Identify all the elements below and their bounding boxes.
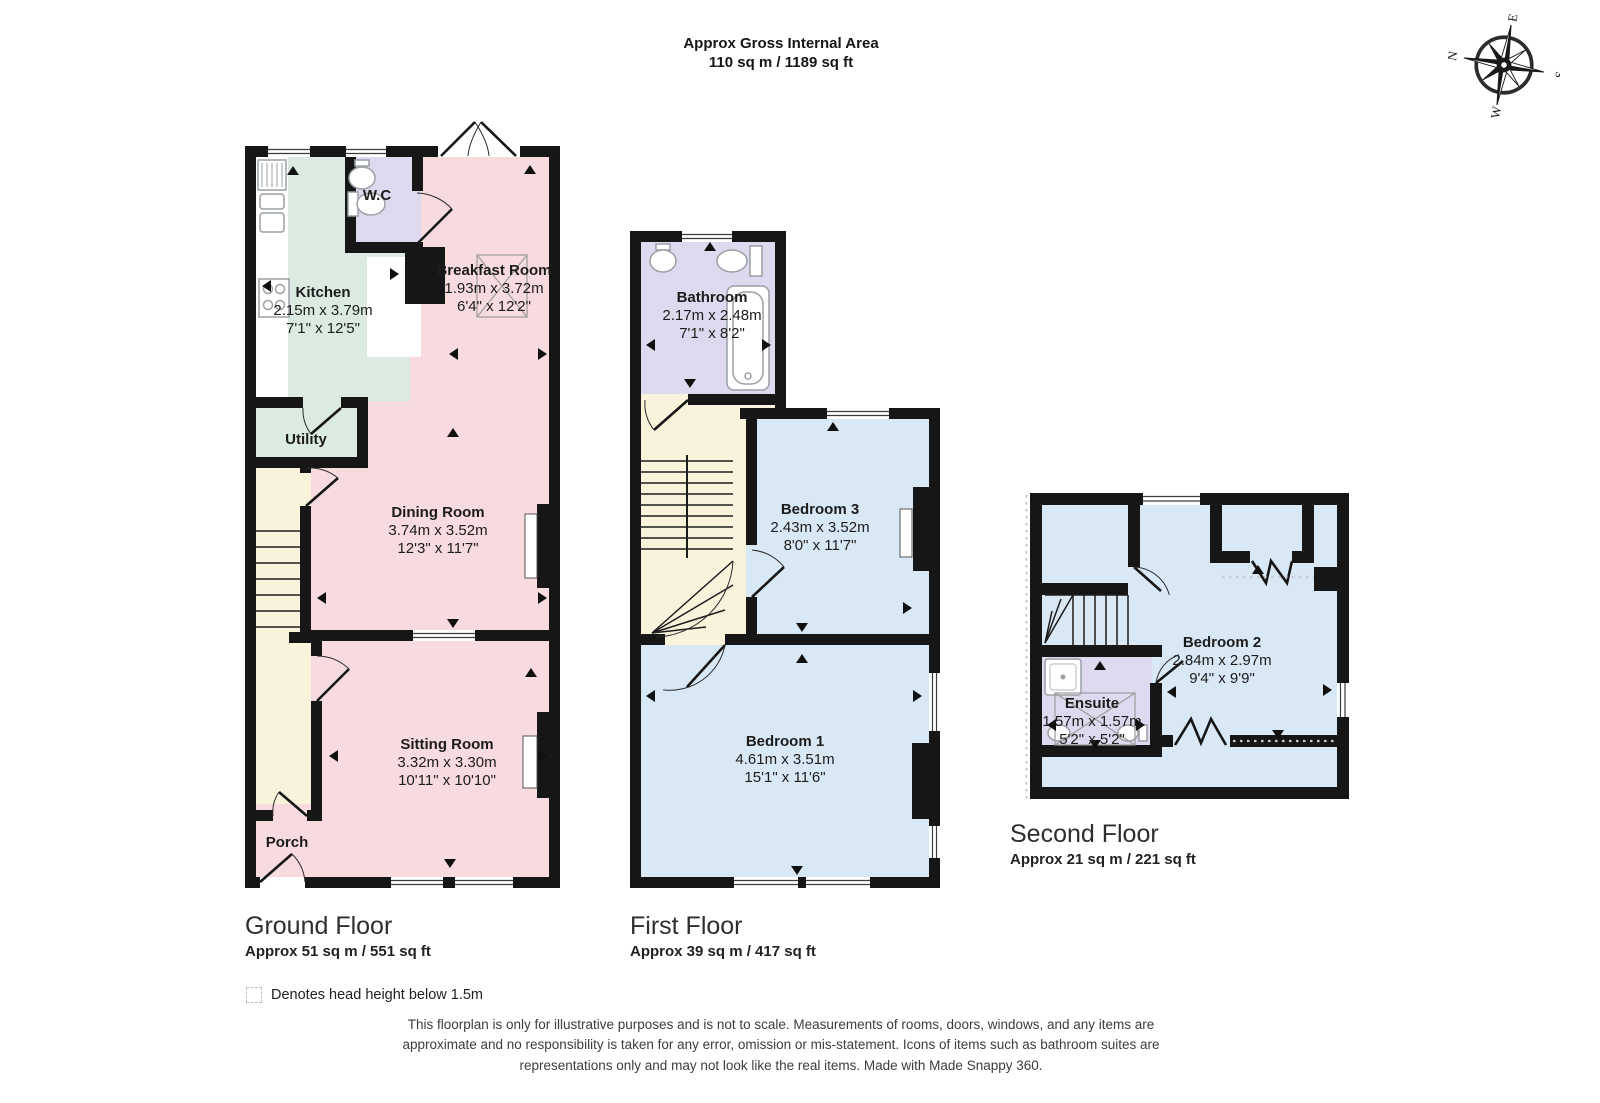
room-label-kitchen: Kitchen 2.15m x 3.79m 7'1" x 12'5" [273, 284, 372, 338]
room-label-bedroom-1: Bedroom 1 4.61m x 3.51m 15'1" x 11'6" [735, 733, 834, 787]
room-label-breakfast-room: Breakfast Room 1.93m x 3.72m 6'4" x 12'2… [436, 262, 551, 316]
gross-internal-area-header: Approx Gross Internal Area 110 sq m / 11… [481, 34, 1081, 72]
compass-s-label: S [1552, 70, 1560, 80]
room-label-bedroom-3: Bedroom 3 2.43m x 3.52m 8'0" x 11'7" [770, 501, 869, 555]
header-area: 110 sq m / 1189 sq ft [481, 53, 1081, 72]
room-label-utility: Utility [285, 431, 327, 449]
second-floor-area: Approx 21 sq m / 221 sq ft [1010, 851, 1196, 868]
room-label-sitting-room: Sitting Room 3.32m x 3.30m 10'11" x 10'1… [397, 736, 496, 790]
room-label-wc: W.C [363, 187, 391, 205]
head-height-legend-label: Denotes head height below 1.5m [271, 987, 483, 1003]
kitchen-sink-icon [258, 160, 286, 232]
room-label-bathroom: Bathroom 2.17m x 2.48m 7'1" x 8'2" [662, 289, 761, 343]
ground-floor-area: Approx 51 sq m / 551 sq ft [245, 943, 431, 960]
room-label-dining-room: Dining Room 3.74m x 3.52m 12'3" x 11'7" [388, 504, 487, 558]
room-label-porch: Porch [266, 834, 309, 852]
disclaimer-text: This floorplan is only for illustrative … [401, 1015, 1161, 1076]
compass-e-label: E [1504, 12, 1520, 22]
first-floor-title: First Floor [630, 912, 743, 941]
room-label-ensuite: Ensuite 1.57m x 1.57m 5'2" x 5'2" [1042, 695, 1141, 749]
compass-w-label: W [1487, 104, 1504, 119]
head-height-legend-icon [246, 987, 262, 1003]
compass-n-label: N [1448, 49, 1461, 61]
header-title: Approx Gross Internal Area [481, 34, 1081, 53]
shower-icon [1045, 659, 1081, 695]
ground-floor-title: Ground Floor [245, 912, 392, 941]
first-floor-area: Approx 39 sq m / 417 sq ft [630, 943, 816, 960]
compass-rose-icon: N E S W [1448, 4, 1560, 126]
room-label-bedroom-2: Bedroom 2 2.84m x 2.97m 9'4" x 9'9" [1172, 634, 1271, 688]
second-floor-title: Second Floor [1010, 820, 1159, 849]
